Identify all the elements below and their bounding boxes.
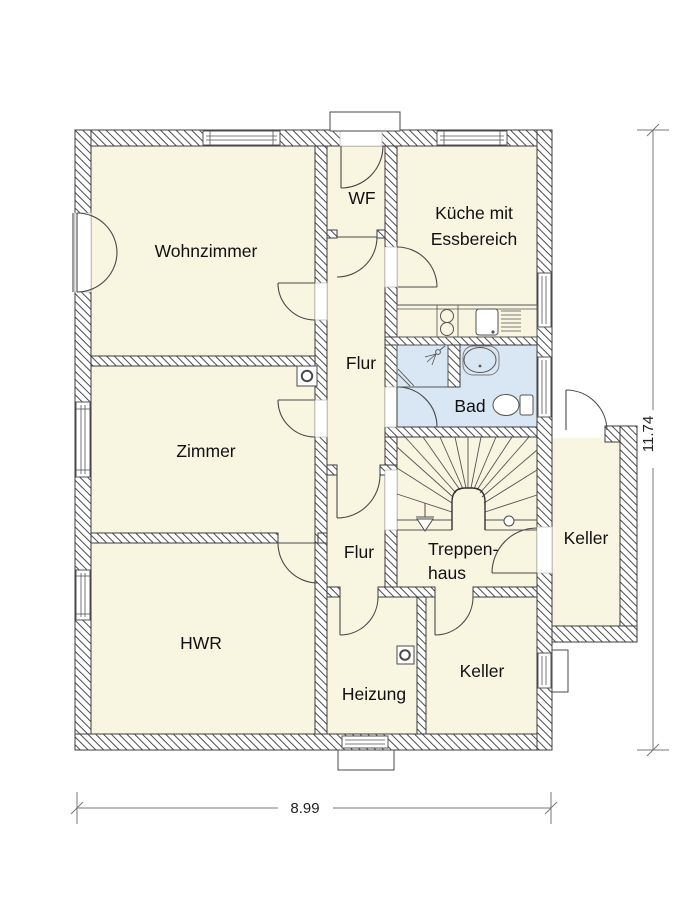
label-treppenhaus-line2: haus: [428, 563, 466, 583]
dimension-width: 8.99: [71, 792, 557, 824]
label-heizung: Heizung: [342, 684, 406, 704]
handrail-post: [504, 516, 514, 526]
window-livingroom-top: [203, 131, 280, 145]
light-well: [552, 650, 568, 692]
window-bath-right: [538, 357, 551, 417]
window-cellar-right: [538, 650, 568, 692]
window-kitchen-top: [437, 131, 507, 145]
flue-marker-icon: [397, 646, 414, 664]
label-treppenhaus-line1: Treppen-: [428, 539, 499, 559]
label-keller-anbau: Keller: [564, 528, 609, 548]
label-keller: Keller: [460, 661, 505, 681]
toilet-icon: [493, 395, 533, 416]
window-kitchen-right: [538, 273, 551, 327]
label-kueche-line1: Küche mit: [435, 203, 513, 223]
flue-marker-icon: [297, 366, 317, 386]
entry-step: [330, 112, 400, 131]
label-kueche-line2: Essbereich: [431, 229, 518, 249]
window-hwr-left: [76, 570, 90, 620]
label-bad: Bad: [454, 396, 485, 416]
light-well: [338, 750, 394, 770]
label-wohnzimmer: Wohnzimmer: [155, 241, 258, 261]
label-flur-oben: Flur: [346, 353, 376, 373]
dimension-height: 11.74: [637, 124, 669, 756]
dimension-width-value: 8.99: [290, 800, 319, 817]
shower-icon: [397, 345, 448, 387]
shower-partition-wall: [448, 345, 460, 387]
floor-plan: Wohnzimmer WF Küche mit Essbereich Flur …: [0, 0, 673, 900]
label-wf: WF: [348, 188, 375, 208]
window-heating-bottom: [338, 736, 394, 770]
label-hwr: HWR: [180, 633, 222, 653]
label-flur-unten: Flur: [344, 542, 374, 562]
window-room-left: [76, 402, 90, 477]
label-zimmer: Zimmer: [176, 441, 235, 461]
door-cellar-exterior: [566, 390, 607, 430]
dimension-height-value: 11.74: [640, 416, 657, 452]
